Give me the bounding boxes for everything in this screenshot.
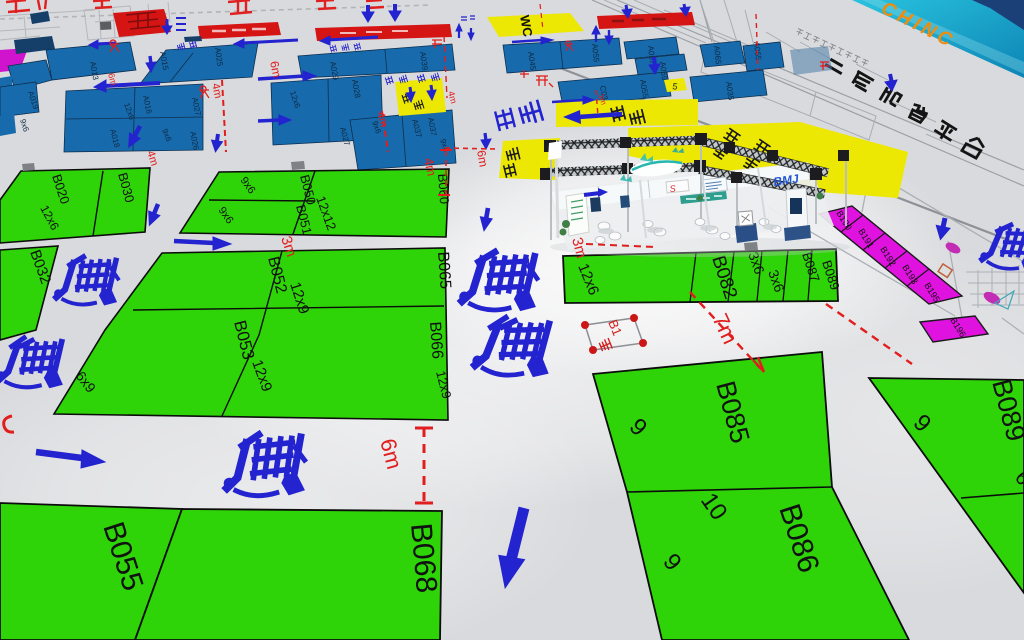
svg-text:S: S (669, 183, 676, 194)
svg-text:B066: B066 (426, 321, 446, 360)
svg-text:B065: B065 (434, 251, 454, 290)
svg-text:B068: B068 (404, 522, 443, 595)
svg-text:6m: 6m (474, 149, 491, 168)
svg-text:B060: B060 (435, 173, 452, 204)
